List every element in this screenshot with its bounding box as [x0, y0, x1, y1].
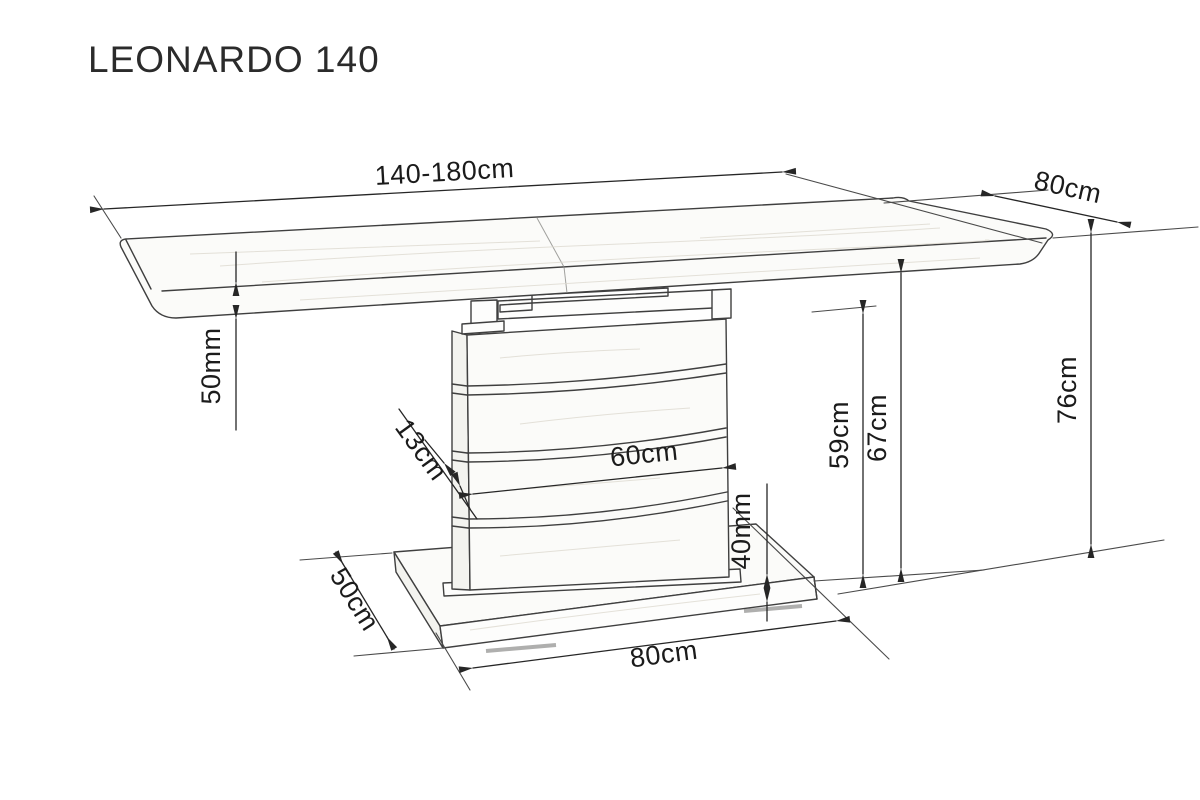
dimension-label: 140-180cm: [374, 153, 515, 191]
witness-base-back-extended: [300, 553, 392, 560]
witness-column-top: [812, 306, 876, 312]
dimension-overshoot: [336, 552, 343, 564]
dimension-column-height: 59cm: [824, 314, 863, 574]
table-dimension-diagram: 140-180cm 80cm 50mm 13cm 60cm 59cm 67cm …: [0, 0, 1200, 800]
witness-front-edge-extended: [1053, 227, 1198, 238]
dimension-clearance-height: 67cm: [862, 273, 901, 568]
witness-base-bottom-extended: [354, 648, 443, 656]
drawing-title: LEONARDO 140: [88, 39, 380, 80]
witness-floor-right: [838, 540, 1164, 594]
dimension-label: 76cm: [1052, 356, 1082, 424]
witness-back-edge-extended: [884, 190, 1048, 203]
dimension-total-height: 76cm: [1052, 233, 1091, 544]
dimension-top-depth: 80cm: [995, 165, 1117, 222]
mechanism-left-post-foot: [462, 321, 504, 334]
dimension-label: 59cm: [824, 401, 854, 469]
dimension-label: 40mm: [726, 492, 756, 569]
dimension-label: 80cm: [1031, 165, 1104, 209]
pedestal-column: [452, 319, 729, 590]
dimension-label: 50mm: [196, 327, 226, 404]
mechanism-right-post: [712, 289, 731, 319]
base-foot-left: [486, 645, 556, 651]
witness-base-top-right: [814, 570, 984, 581]
technical-drawing-page: 140-180cm 80cm 50mm 13cm 60cm 59cm 67cm …: [0, 0, 1200, 800]
dimension-base-depth: 50cm: [324, 552, 394, 649]
dimension-label: 80cm: [628, 635, 699, 674]
dimension-label: 67cm: [862, 394, 892, 462]
dimension-label: 50cm: [324, 562, 385, 636]
dimension-label: 13cm: [389, 413, 453, 486]
dimension-top-length: 140-180cm: [104, 153, 782, 209]
dimension-overshoot: [387, 637, 394, 649]
witness-length-left: [94, 196, 121, 238]
